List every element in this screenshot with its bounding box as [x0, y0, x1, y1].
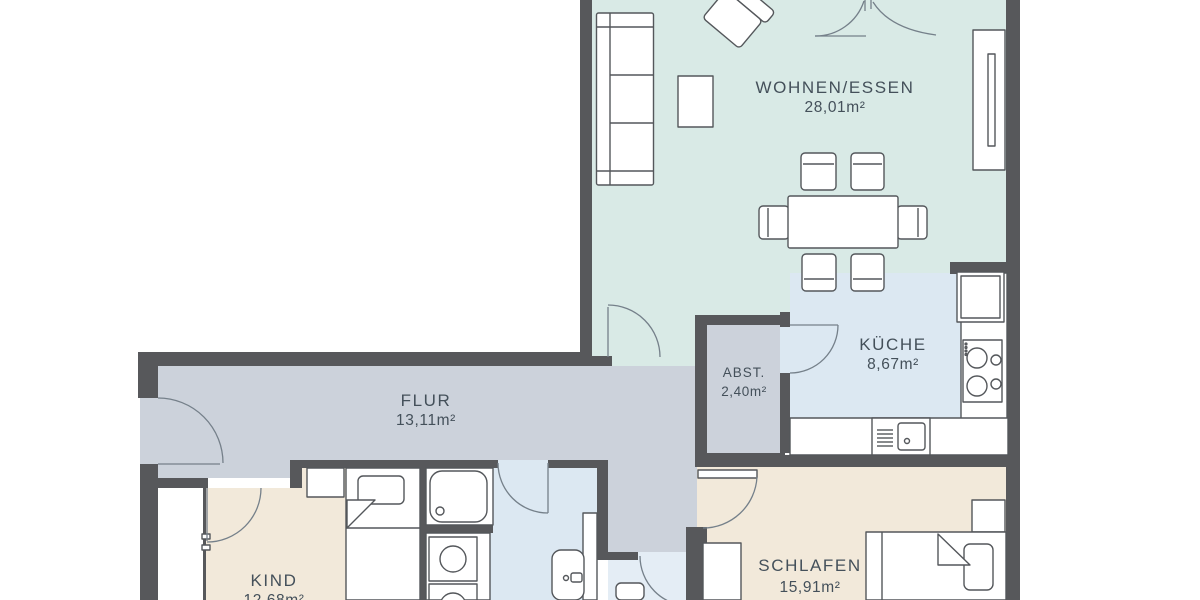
- room-label-living: WOHNEN/ESSEN: [756, 78, 915, 97]
- pillow: [964, 544, 993, 590]
- bed-double: [866, 532, 1006, 600]
- room-label-bedroom: SCHLAFEN: [758, 556, 862, 575]
- room-area-child: 12,68m²: [243, 592, 304, 600]
- tv-sideboard: [973, 30, 1005, 170]
- dining-chair: [802, 254, 836, 291]
- toilet: [616, 583, 644, 600]
- dining-chair: [851, 153, 884, 190]
- wall-segment: [548, 460, 597, 468]
- washbasin: [552, 550, 584, 600]
- nightstand: [972, 500, 1005, 532]
- room-area-hall: 13,11m²: [396, 412, 456, 429]
- kitchen-sink: [872, 418, 930, 455]
- floor-bath-doorgap: [498, 460, 548, 468]
- wall-segment: [597, 460, 608, 552]
- wall-segment: [695, 455, 1020, 467]
- wall-segment: [695, 315, 785, 325]
- wall-segment: [597, 552, 638, 560]
- bed-child: [346, 468, 420, 600]
- dining-chair: [759, 206, 789, 239]
- coffee-table: [678, 76, 713, 127]
- wall-segment: [158, 478, 208, 488]
- wardrobe: [703, 543, 741, 600]
- floorplan-canvas: WOHNEN/ESSEN 28,01m² KÜCHE 8,67m² ABST. …: [0, 0, 1200, 600]
- wall-segment: [780, 373, 790, 453]
- room-label-storage: ABST.: [723, 365, 766, 380]
- room-label-hall: FLUR: [401, 391, 452, 410]
- wall-segment: [695, 315, 707, 455]
- sofa: [597, 13, 654, 185]
- bath-cabinet: [583, 513, 597, 600]
- door-hinge-tick: [202, 534, 210, 539]
- room-label-child: KIND: [250, 571, 297, 590]
- dining-chair: [801, 153, 836, 190]
- dining-chair: [851, 254, 884, 291]
- floorplan-svg: WOHNEN/ESSEN 28,01m² KÜCHE 8,67m² ABST. …: [0, 0, 1200, 600]
- wall-segment: [138, 352, 158, 398]
- dining-chair: [897, 206, 927, 239]
- bedroom-door-leaf: [698, 470, 757, 478]
- room-area-living: 28,01m²: [804, 99, 865, 116]
- washing-machine: [429, 537, 477, 581]
- room-label-kitchen: KÜCHE: [859, 335, 927, 354]
- room-area-kitchen: 8,67m²: [867, 356, 919, 373]
- wall-segment: [140, 464, 158, 600]
- door-hinge-tick: [202, 545, 210, 550]
- wall-segment: [302, 460, 498, 468]
- wall-segment: [1006, 0, 1020, 600]
- nightstand: [307, 468, 344, 497]
- wall-segment: [580, 0, 592, 366]
- wall-segment: [203, 488, 206, 600]
- wall-segment: [138, 352, 592, 366]
- dining-table: [788, 196, 898, 248]
- room-area-storage: 2,40m²: [721, 384, 767, 399]
- fridge: [957, 272, 1004, 322]
- shower: [430, 471, 487, 522]
- room-area-bedroom: 15,91m²: [779, 579, 840, 596]
- wall-segment: [424, 525, 493, 533]
- wall-segment: [780, 312, 790, 327]
- floor-kitchen-doorgap: [778, 327, 792, 373]
- wall-segment: [580, 356, 612, 366]
- stove: [963, 340, 1002, 402]
- wall-segment: [290, 460, 302, 488]
- washing-machine: [429, 584, 477, 600]
